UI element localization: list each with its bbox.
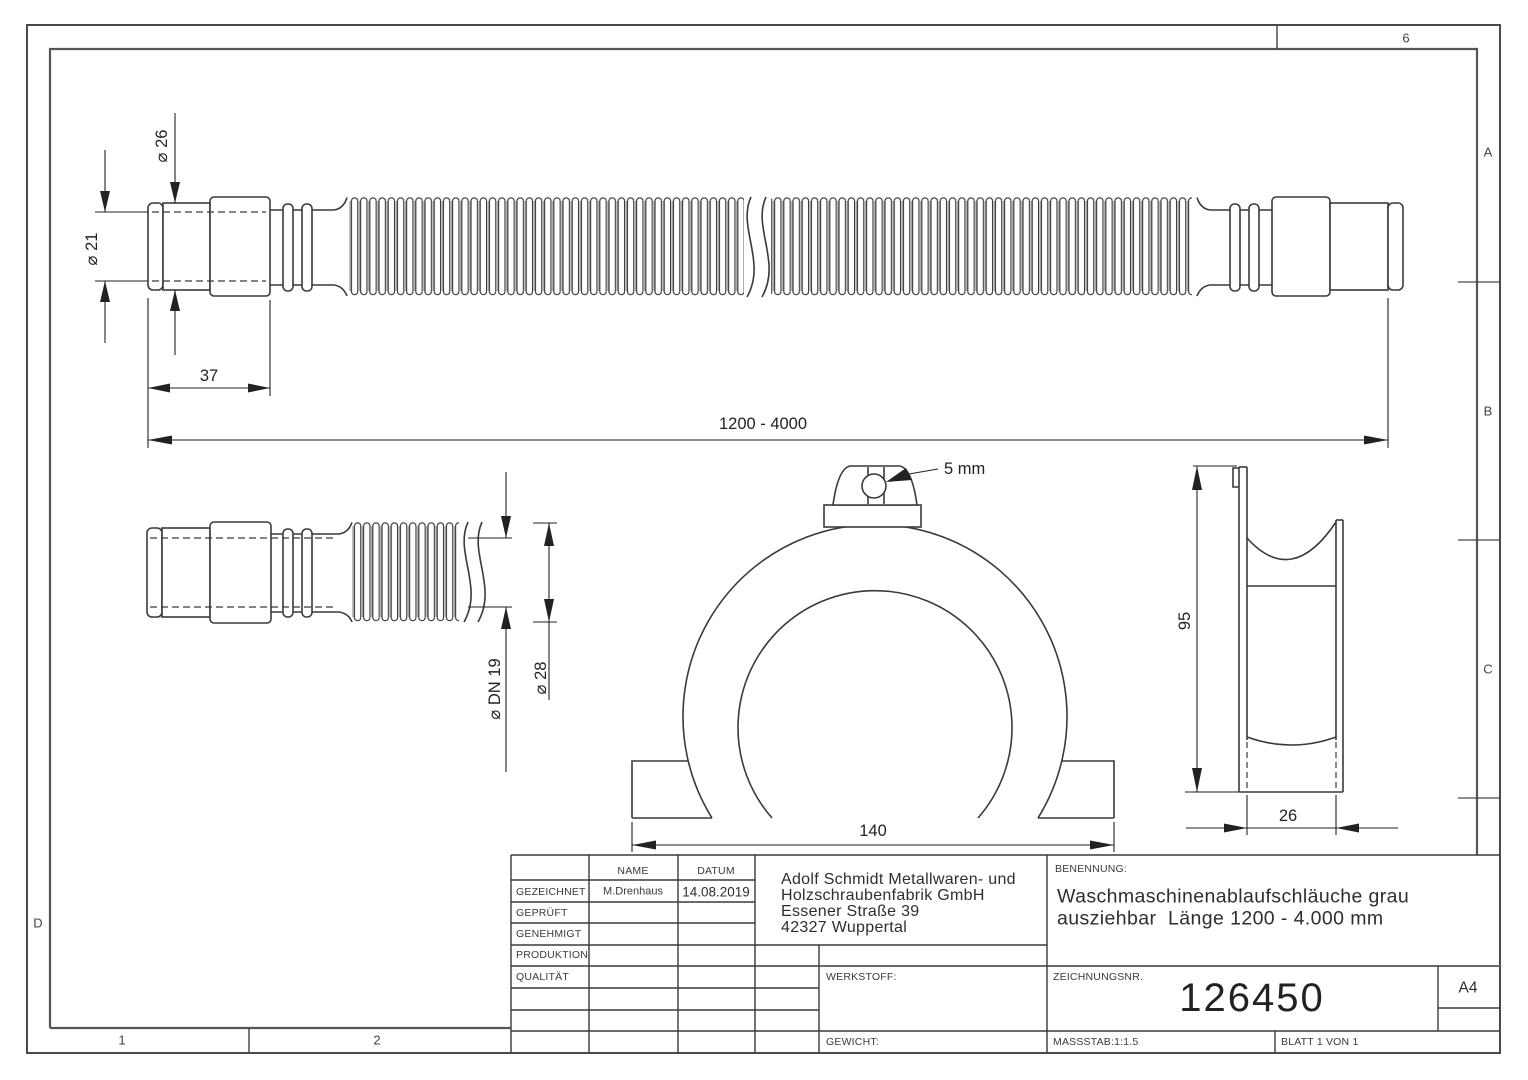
- gewicht-label: GEWICHT:: [826, 1037, 879, 1048]
- zone-label-6: 6: [1402, 32, 1409, 45]
- benennung-label: BENENNUNG:: [1055, 864, 1127, 875]
- zone-label-2: 2: [373, 1034, 380, 1047]
- dim-bracket-height: 95: [1177, 612, 1194, 630]
- blatt-value: BLATT 1 VON 1: [1281, 1037, 1359, 1048]
- company-street: Essener Straße 39: [781, 904, 920, 920]
- dim-total-length: 1200 - 4000: [719, 416, 807, 433]
- hose-detail-view: [147, 472, 557, 772]
- zone-label-d: D: [33, 917, 42, 930]
- titleblock-drawn-by: M.Drenhaus: [603, 887, 663, 898]
- drawing-sheet: 6 A B C D 1 2 ⌀ 26 ⌀ 21 37 1200 - 4000 ⌀…: [0, 0, 1528, 1080]
- part-title-line1: Waschmaschinenablaufschläuche grau: [1057, 887, 1409, 907]
- dim-bracket-hole: 5 mm: [944, 461, 985, 478]
- zone-label-b: B: [1484, 405, 1493, 418]
- titleblock-row-produktion: PRODUKTION: [516, 950, 588, 961]
- dim-detail-nominal-dia: ⌀ DN 19: [487, 658, 504, 719]
- titleblock-row-genehmigt: GENEHMIGT: [516, 929, 581, 940]
- massstab-value: MASSSTAB:1:1.5: [1053, 1037, 1138, 1048]
- zone-label-c: C: [1483, 663, 1492, 676]
- titleblock-row-geprueft: GEPRÜFT: [516, 908, 568, 919]
- titleblock-header-name: NAME: [617, 866, 648, 877]
- drawing-number: 126450: [1179, 978, 1324, 1018]
- paper-format: A4: [1459, 980, 1478, 996]
- dim-connector-length: 37: [200, 368, 218, 385]
- zone-label-a: A: [1484, 146, 1493, 159]
- titleblock-row-qualitaet: QUALITÄT: [516, 972, 569, 983]
- werkstoff-label: WERKSTOFF:: [826, 972, 897, 983]
- titleblock-header-datum: DATUM: [697, 866, 735, 877]
- dim-main-outer-dia: ⌀ 26: [154, 130, 171, 163]
- dim-main-inner-dia: ⌀ 21: [84, 233, 101, 266]
- company-city: 42327 Wuppertal: [781, 920, 907, 936]
- dim-bracket-width: 140: [859, 823, 887, 840]
- titleblock-row-gezeichnet: GEZEICHNET: [516, 887, 586, 898]
- bracket-front-view: [632, 466, 1114, 852]
- dim-bracket-depth: 26: [1279, 808, 1297, 825]
- bracket-side-view: [1185, 466, 1398, 835]
- zone-label-1: 1: [118, 1034, 125, 1047]
- zeichnungsnr-label: ZEICHNUNGSNR.: [1053, 972, 1143, 983]
- dim-detail-outer-dia: ⌀ 28: [533, 662, 550, 695]
- company-name-line1: Adolf Schmidt Metallwaren- und: [781, 872, 1016, 888]
- hose-main-view: [95, 113, 1403, 448]
- part-title-line2: ausziehbar Länge 1200 - 4.000 mm: [1057, 909, 1384, 929]
- titleblock-drawn-date: 14.08.2019: [682, 885, 750, 899]
- company-name-line2: Holzschraubenfabrik GmbH: [781, 888, 985, 904]
